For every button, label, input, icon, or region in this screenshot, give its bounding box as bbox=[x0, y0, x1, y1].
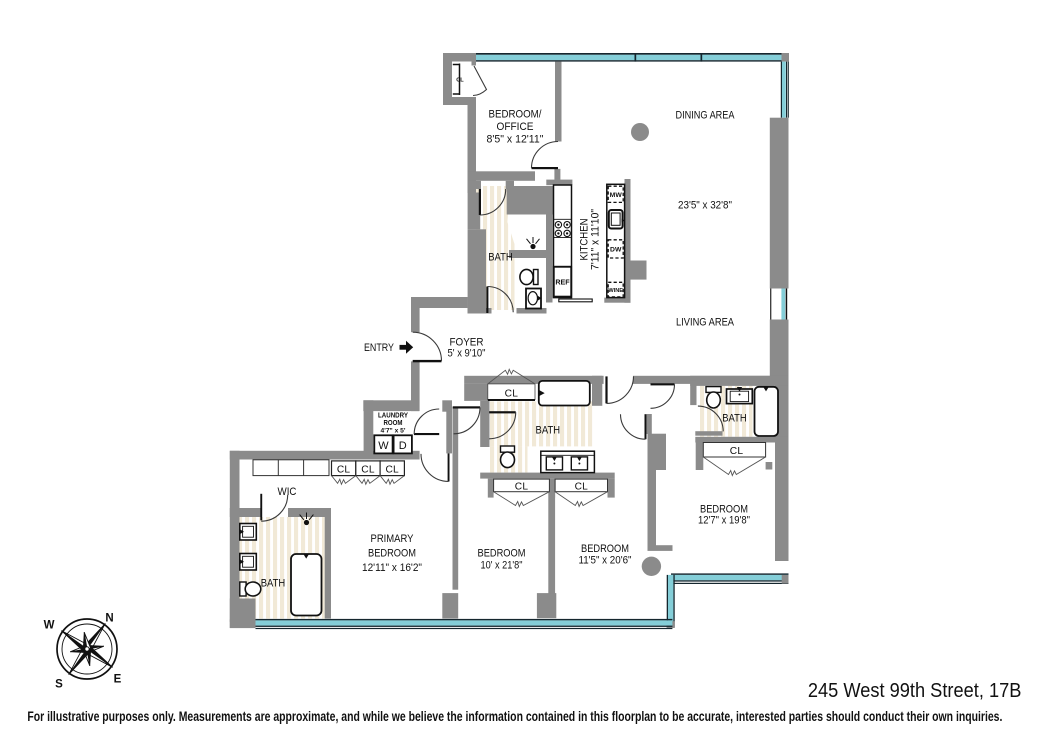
svg-text:REF: REF bbox=[555, 278, 570, 287]
svg-text:BEDROOM/: BEDROOM/ bbox=[489, 109, 543, 121]
svg-text:W: W bbox=[378, 440, 389, 452]
svg-text:S: S bbox=[55, 679, 63, 691]
svg-text:PRIMARY: PRIMARY bbox=[371, 533, 414, 545]
svg-text:CL: CL bbox=[385, 464, 399, 475]
svg-text:ENTRY: ENTRY bbox=[364, 342, 394, 354]
svg-text:OFFICE: OFFICE bbox=[497, 121, 534, 133]
svg-text:W: W bbox=[44, 619, 55, 631]
svg-text:For illustrative purposes only: For illustrative purposes only. Measurem… bbox=[27, 709, 1002, 724]
svg-text:8'5" x 12'11": 8'5" x 12'11" bbox=[487, 134, 544, 146]
svg-text:BATH: BATH bbox=[261, 577, 286, 589]
svg-text:CL: CL bbox=[456, 78, 464, 84]
svg-text:CL: CL bbox=[361, 464, 375, 475]
svg-text:CL: CL bbox=[337, 464, 351, 475]
svg-text:BATH: BATH bbox=[536, 424, 561, 436]
svg-text:7'11" x 11'10": 7'11" x 11'10" bbox=[590, 209, 602, 270]
svg-text:LIVING AREA: LIVING AREA bbox=[676, 316, 734, 328]
svg-text:BEDROOM: BEDROOM bbox=[581, 543, 629, 555]
svg-text:KITCHEN: KITCHEN bbox=[579, 219, 591, 261]
svg-text:D: D bbox=[399, 440, 407, 452]
svg-text:23'5" x 32'8": 23'5" x 32'8" bbox=[678, 200, 732, 212]
svg-text:BEDROOM: BEDROOM bbox=[478, 548, 526, 560]
svg-text:12'11" x 16'2": 12'11" x 16'2" bbox=[362, 562, 422, 574]
svg-text:E: E bbox=[114, 674, 122, 686]
svg-text:CL: CL bbox=[575, 482, 589, 493]
svg-text:WIC: WIC bbox=[278, 486, 297, 498]
svg-text:BATH: BATH bbox=[488, 252, 513, 264]
svg-text:12'7" x 19'8": 12'7" x 19'8" bbox=[698, 515, 750, 527]
svg-text:BATH: BATH bbox=[722, 413, 747, 425]
svg-text:DW: DW bbox=[610, 247, 622, 254]
svg-text:DINING AREA: DINING AREA bbox=[676, 110, 735, 122]
svg-text:BEDROOM: BEDROOM bbox=[368, 548, 416, 560]
svg-text:4'7" x 5': 4'7" x 5' bbox=[381, 428, 406, 435]
svg-text:11'5" x 20'6": 11'5" x 20'6" bbox=[579, 555, 632, 567]
svg-text:10' x 21'8": 10' x 21'8" bbox=[481, 560, 523, 572]
svg-text:5' x 9'10": 5' x 9'10" bbox=[448, 348, 486, 360]
svg-text:N: N bbox=[105, 613, 113, 625]
svg-text:CL: CL bbox=[505, 388, 519, 399]
svg-text:ROOM: ROOM bbox=[384, 418, 403, 427]
svg-text:CL: CL bbox=[730, 446, 744, 457]
svg-text:CL: CL bbox=[515, 482, 529, 493]
svg-text:MW: MW bbox=[610, 192, 623, 199]
svg-text:FOYER: FOYER bbox=[450, 336, 484, 348]
svg-text:WINE: WINE bbox=[608, 288, 623, 294]
svg-text:245 West 99th Street, 17B: 245 West 99th Street, 17B bbox=[808, 679, 1022, 702]
